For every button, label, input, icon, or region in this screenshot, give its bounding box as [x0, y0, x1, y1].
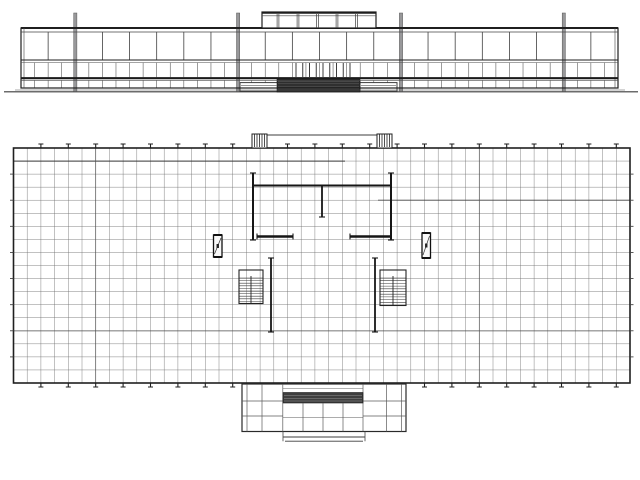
- plan-grid: [14, 148, 631, 383]
- louver-vents: [214, 233, 431, 258]
- north-porch: [252, 134, 392, 148]
- elevation-drawing: [4, 12, 638, 92]
- facade-frame: [15, 28, 625, 90]
- drawing-page: [0, 0, 640, 480]
- interior-stairs: [239, 270, 406, 306]
- roof-plan-drawing: [10, 134, 634, 441]
- architectural-drawing: [0, 0, 640, 480]
- south-porch-terrace: [242, 384, 406, 441]
- clerestory-box: [262, 12, 376, 28]
- entrance-door-mullions: [296, 63, 350, 77]
